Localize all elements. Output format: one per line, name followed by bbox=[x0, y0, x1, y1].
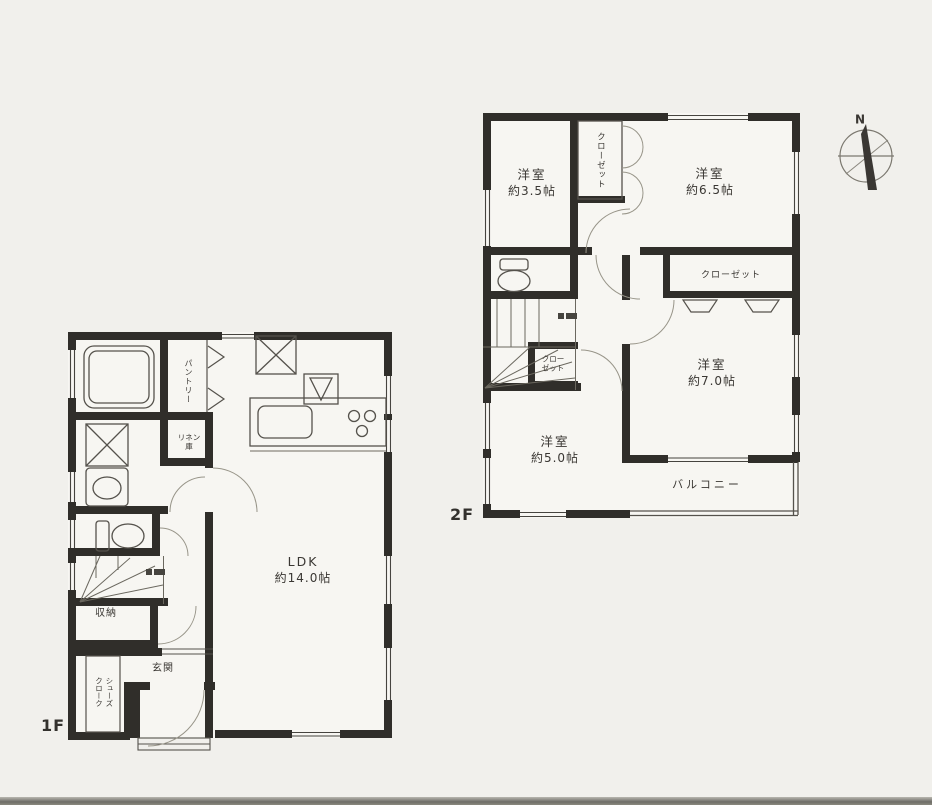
room-label-bedroom-5-0: 洋室 約5.0帖 bbox=[531, 434, 579, 466]
entrance-label: 玄関 bbox=[152, 663, 174, 676]
room-label-bedroom-6-5: 洋室 約6.5帖 bbox=[686, 166, 734, 198]
compass-icon bbox=[838, 124, 894, 190]
shoe-closet-label: シューズ クローク bbox=[94, 677, 114, 707]
closet-label-small: クロー ゼット bbox=[542, 355, 565, 374]
room-label-bedroom-3-5: 洋室 約3.5帖 bbox=[508, 167, 556, 199]
storage-label: 収納 bbox=[95, 608, 117, 621]
linen-closet-label: リネン庫 bbox=[176, 433, 202, 451]
closet-label-vertical: クローゼット bbox=[595, 118, 606, 202]
compass-north-label: N bbox=[855, 113, 865, 128]
floor2-label: 2F bbox=[450, 505, 474, 525]
room-label-ldk: LDK 約14.0帖 bbox=[275, 554, 332, 586]
floor1-plan bbox=[68, 332, 392, 750]
floor1-label: 1F bbox=[41, 716, 65, 736]
scan-edge-artifact bbox=[0, 797, 932, 805]
pantry-label: パントリー bbox=[183, 344, 193, 418]
floor-plan-sheet: 洋室 約3.5帖 洋室 約6.5帖 洋室 約7.0帖 洋室 約5.0帖 クローゼ… bbox=[0, 0, 932, 805]
balcony-label: バルコニー bbox=[672, 478, 742, 492]
room-label-bedroom-7-0: 洋室 約7.0帖 bbox=[688, 357, 736, 389]
stair-direction-marker-1f bbox=[146, 569, 165, 575]
stair-direction-marker-2f bbox=[558, 313, 577, 319]
floor-plan-drawing bbox=[0, 0, 932, 805]
closet-label-wide: クローゼット bbox=[701, 270, 761, 281]
